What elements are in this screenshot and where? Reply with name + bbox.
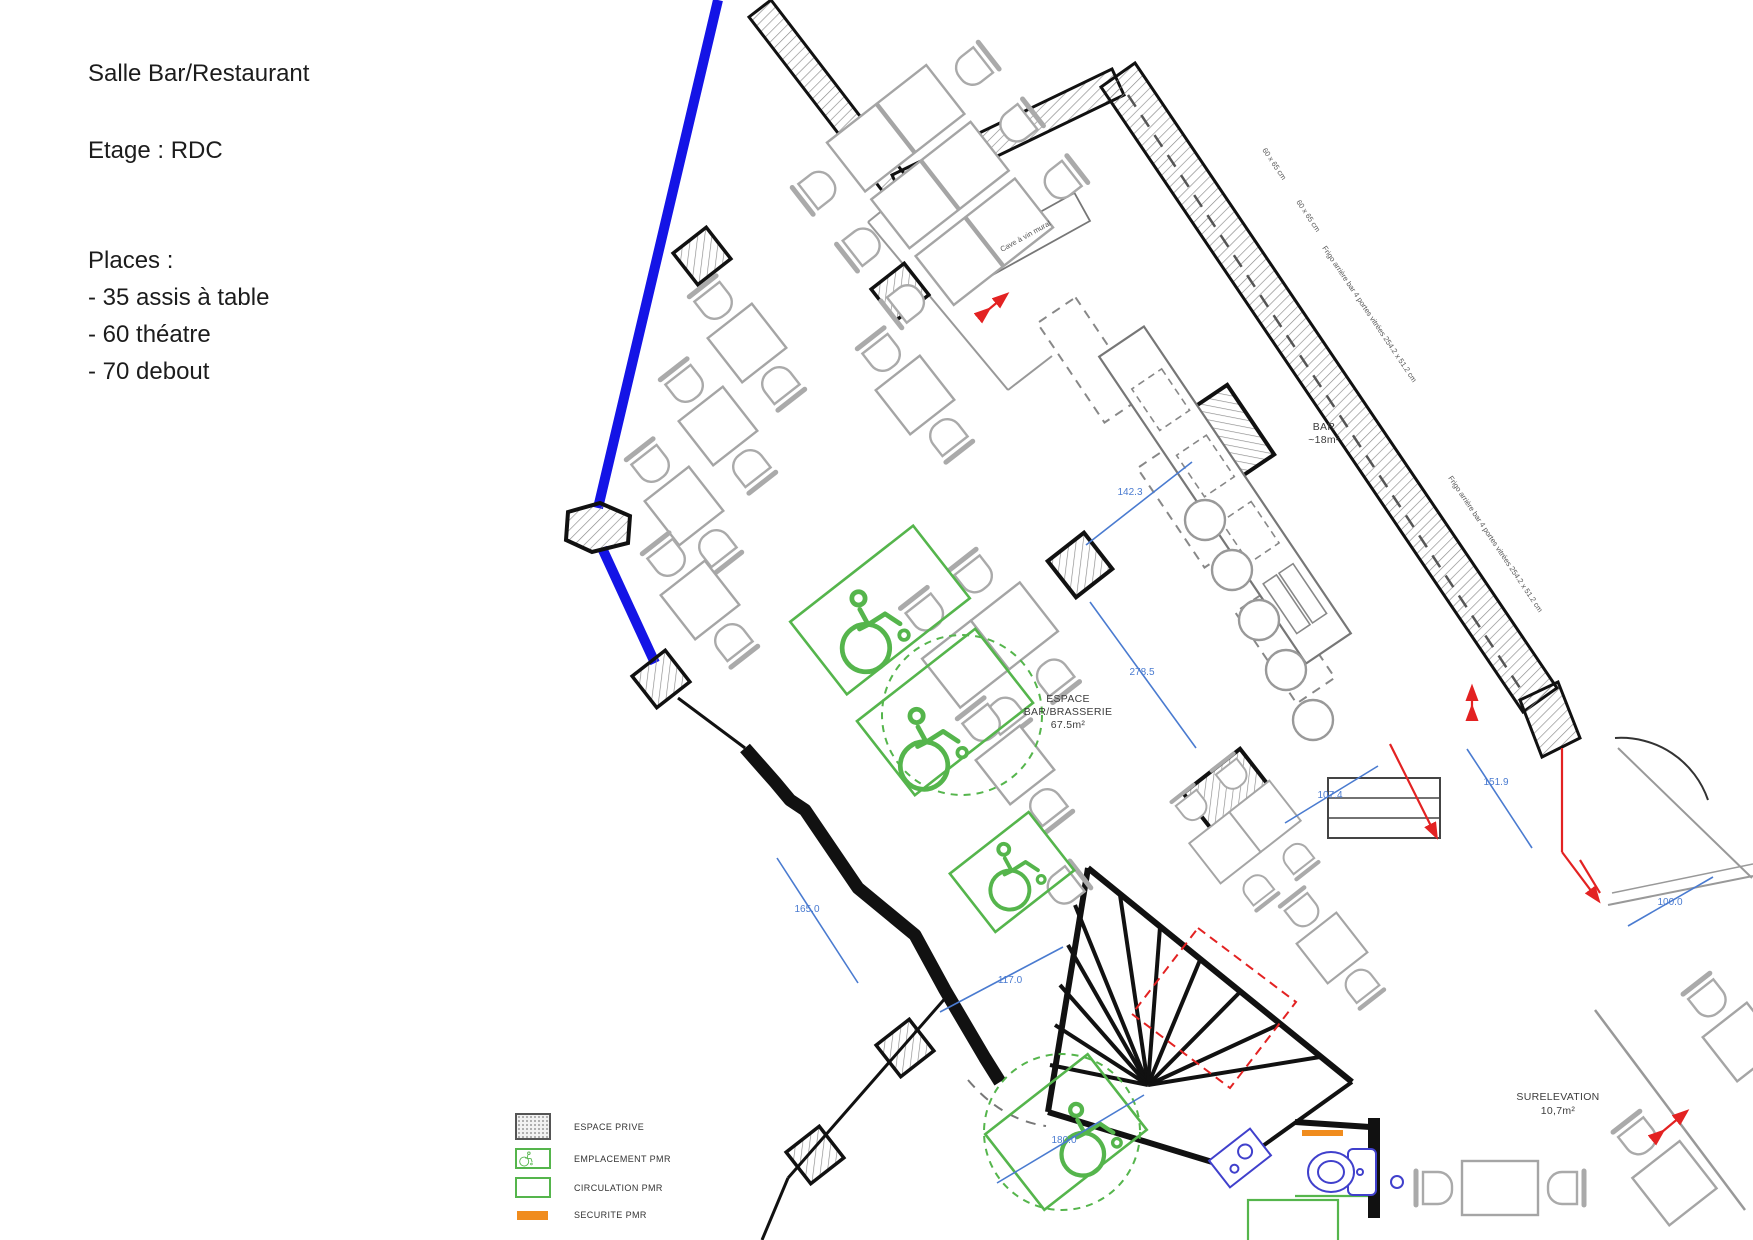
floor-plan-svg: 142.3 278.5 107.4 151.9 165.0 117.0 180.…	[0, 0, 1753, 1240]
legend-label: ESPACE PRIVE	[574, 1122, 644, 1132]
legend-item-circulation-pmr: CIRCULATION PMR	[515, 1177, 671, 1198]
brasserie-area-label: 67.5m²	[1051, 719, 1086, 731]
wc-area	[1209, 1118, 1403, 1218]
legend-item-emplacement-pmr: EMPLACEMENT PMR	[515, 1148, 671, 1169]
securite-pmr-swatch	[517, 1211, 548, 1220]
dimension-label: 180.0	[1051, 1135, 1076, 1146]
dim-60x65-label: 60 x 65 cm	[1294, 198, 1322, 233]
brasserie-label: BAR/BRASSERIE	[1024, 706, 1113, 718]
table-pair	[849, 321, 982, 469]
wheelchair-icon	[874, 700, 972, 799]
toilet-icon	[1308, 1149, 1376, 1195]
dimension-label: 151.9	[1483, 777, 1508, 788]
circulation-pmr-swatch	[515, 1177, 551, 1198]
legend-label: CIRCULATION PMR	[574, 1183, 663, 1193]
bar-label: BAR	[1313, 421, 1336, 433]
legend-label: SECURITE PMR	[574, 1210, 647, 1220]
dimension-label: 117.0	[998, 975, 1023, 986]
brasserie-label: ESPACE	[1046, 693, 1090, 705]
surelevation-label: SURELEVATION	[1516, 1091, 1599, 1103]
table-pair	[1674, 966, 1753, 1081]
wheelchair-icon	[520, 1152, 533, 1166]
pmr-green-rect	[1248, 1200, 1338, 1240]
legend-label: EMPLACEMENT PMR	[574, 1154, 671, 1164]
espace-prive-swatch	[515, 1113, 551, 1140]
securite-pmr-strip	[1302, 1130, 1343, 1136]
emplacement-pmr-swatch	[515, 1148, 551, 1169]
sink-icon	[1209, 1129, 1271, 1188]
legend-item-securite-pmr: SECURITE PMR	[515, 1210, 671, 1220]
legend: ESPACE PRIVE EMPLACEMENT PMR CIRCULATION…	[515, 1113, 671, 1220]
table-pair	[1272, 881, 1392, 1014]
dim-60x65-label: 60 x 65 cm	[1260, 146, 1288, 181]
dimension-label: 107.4	[1317, 790, 1342, 801]
dimension-label: 142.3	[1117, 487, 1142, 498]
legend-item-espace-prive: ESPACE PRIVE	[515, 1113, 671, 1140]
dimension-label: 278.5	[1129, 667, 1154, 678]
floor-plan-page: Salle Bar/Restaurant Etage : RDC Places …	[0, 0, 1753, 1240]
table-pair	[1603, 1103, 1717, 1225]
surelevation-area-label: 10,7m²	[1541, 1105, 1576, 1117]
fixture-icon	[1391, 1176, 1403, 1188]
table-quad	[1163, 746, 1328, 917]
dimension-label: 165.0	[794, 904, 819, 915]
bar-area-label: ~18m²	[1308, 434, 1340, 446]
table-pair-horizontal	[1416, 1161, 1584, 1215]
dimension-label: 100.0	[1657, 897, 1682, 908]
